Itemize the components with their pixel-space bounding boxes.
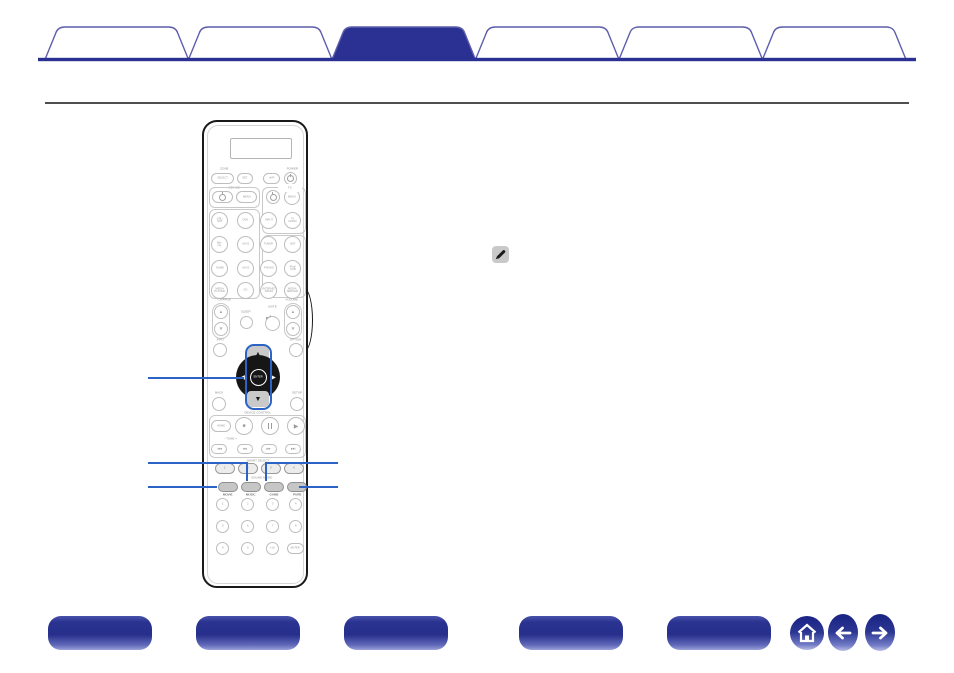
tab-baseline	[38, 58, 916, 61]
mute-button	[265, 316, 280, 331]
callout-line-game-vertical	[265, 462, 267, 481]
zone-select-button: SELECT	[211, 173, 234, 184]
search-forward-button: ▶▶	[261, 444, 277, 454]
tab-4[interactable]	[476, 27, 620, 60]
pause-button	[261, 417, 279, 435]
source-net-button: NET	[284, 236, 301, 253]
pencil-icon	[493, 247, 508, 262]
footer-button-5[interactable]	[667, 616, 771, 650]
digit-1-button: 1	[216, 498, 229, 511]
device-menu-button: MENU	[236, 191, 257, 203]
digit-4-button: 4	[289, 498, 302, 511]
source-tuner-button: TUNER	[260, 236, 277, 253]
power-icon	[219, 194, 226, 201]
skip-forward-button: ▶▶|	[285, 444, 301, 454]
footer-button-2[interactable]	[196, 616, 300, 650]
power-icon	[270, 194, 277, 201]
tab-3-active[interactable]	[332, 27, 476, 60]
callout-line-music-vertical	[246, 462, 248, 481]
callout-line-game-horizontal	[265, 462, 339, 464]
footer-button-1[interactable]	[48, 616, 152, 650]
sound-mode-game-button	[264, 482, 284, 492]
footer-button-4[interactable]	[519, 616, 623, 650]
digit-5-button: 5	[216, 520, 229, 533]
manual-page: ZONE POWER SELECT SET AVP DEVICE TV MENU…	[0, 0, 954, 673]
smart-select-1-button: 1	[215, 463, 235, 474]
volume-up-button: ▲	[286, 305, 300, 319]
smart-select-2-button: 2	[238, 463, 258, 474]
channel-down-button: ▼	[214, 322, 228, 336]
source-aux2-button: AUX2	[237, 260, 254, 277]
callout-line-cursor-buttons	[148, 377, 244, 379]
digit-6-button: 6	[241, 520, 254, 533]
tab-6[interactable]	[763, 27, 907, 60]
source-aux1-button: AUX1	[237, 236, 254, 253]
option-button	[289, 343, 303, 357]
source-game-button: GAME	[211, 260, 228, 277]
sound-mode-movie-button	[218, 482, 238, 492]
home-icon	[795, 621, 819, 645]
tv-audio-button: TV AUDIO	[284, 212, 301, 229]
tv-input-button: INPUT	[260, 212, 277, 229]
back-arrow-icon	[832, 622, 854, 644]
power-icon	[287, 175, 294, 182]
digit-plus10-button: +10	[266, 542, 279, 555]
pause-icon	[268, 423, 273, 429]
tune-label: − TUNE +	[204, 435, 256, 443]
tab-5[interactable]	[619, 27, 763, 60]
tab-bar	[0, 0, 954, 66]
digit-9-button: 9	[216, 542, 229, 555]
mute-speaker-icon	[266, 309, 278, 316]
setup-label: SETUP	[285, 389, 309, 397]
smart-select-4-button: 4	[284, 463, 304, 474]
source-cd-button: CD	[237, 282, 254, 299]
source-cbl-sat-button: CBL/ SAT	[211, 212, 228, 229]
remote-illustration: ZONE POWER SELECT SET AVP DEVICE TV MENU…	[202, 120, 308, 588]
forward-arrow-icon	[869, 622, 891, 644]
tv-label: TV	[278, 184, 302, 192]
callout-line-pure	[299, 486, 338, 488]
back-label: BACK	[207, 389, 231, 397]
home-nav-button[interactable]	[790, 616, 824, 650]
zone-set-button: SET	[237, 173, 253, 184]
digit-2-button: 2	[241, 498, 254, 511]
sound-mode-music-button	[241, 482, 261, 492]
device-power-button	[212, 191, 233, 203]
channel-up-button: ▲	[214, 305, 228, 319]
skip-back-button: |◀◀	[211, 444, 227, 454]
source-bluray-button: Blu-ray	[211, 236, 228, 253]
cursor-highlight	[245, 344, 272, 410]
setup-button	[290, 397, 304, 411]
footer-button-3[interactable]	[344, 616, 448, 650]
sleep-label: SLEEP	[234, 308, 258, 316]
zone-label: ZONE	[212, 165, 236, 173]
source-phono-button: PHONO	[260, 260, 277, 277]
tv-power-button	[266, 190, 280, 204]
remote-display	[230, 138, 292, 159]
callout-line-music-horizontal	[148, 462, 248, 464]
callout-line-movie	[148, 486, 217, 488]
digit-8-button: 8	[289, 520, 302, 533]
tab-1[interactable]	[45, 27, 189, 60]
volume-down-button: ▼	[286, 322, 300, 336]
play-button: ▶	[287, 417, 305, 435]
sleep-button	[240, 316, 253, 329]
digit-3-button: 3	[266, 498, 279, 511]
home-button: HOME	[211, 420, 231, 432]
back-nav-button[interactable]	[828, 614, 858, 651]
info-button	[213, 343, 227, 357]
search-back-button: ◀◀	[237, 444, 253, 454]
stop-button: ■	[235, 417, 253, 435]
source-ipod-usb-button: iPod/ USB	[284, 260, 301, 277]
back-button	[212, 397, 226, 411]
forward-nav-button[interactable]	[865, 614, 895, 651]
digit-7-button: 7	[266, 520, 279, 533]
note-badge	[492, 246, 509, 263]
sound-mode-label: SOUND MODE	[222, 475, 302, 482]
tab-2[interactable]	[189, 27, 333, 60]
avp-button: AVP	[263, 173, 280, 184]
source-dvd-button: DVD	[237, 212, 254, 229]
source-internet-radio-button: INTERNET RADIO	[260, 282, 277, 299]
digit-0-button: 0	[241, 542, 254, 555]
music-label: MUSIC	[239, 492, 263, 499]
digit-enter-button: ENTER	[287, 543, 304, 554]
section-divider	[45, 102, 909, 104]
